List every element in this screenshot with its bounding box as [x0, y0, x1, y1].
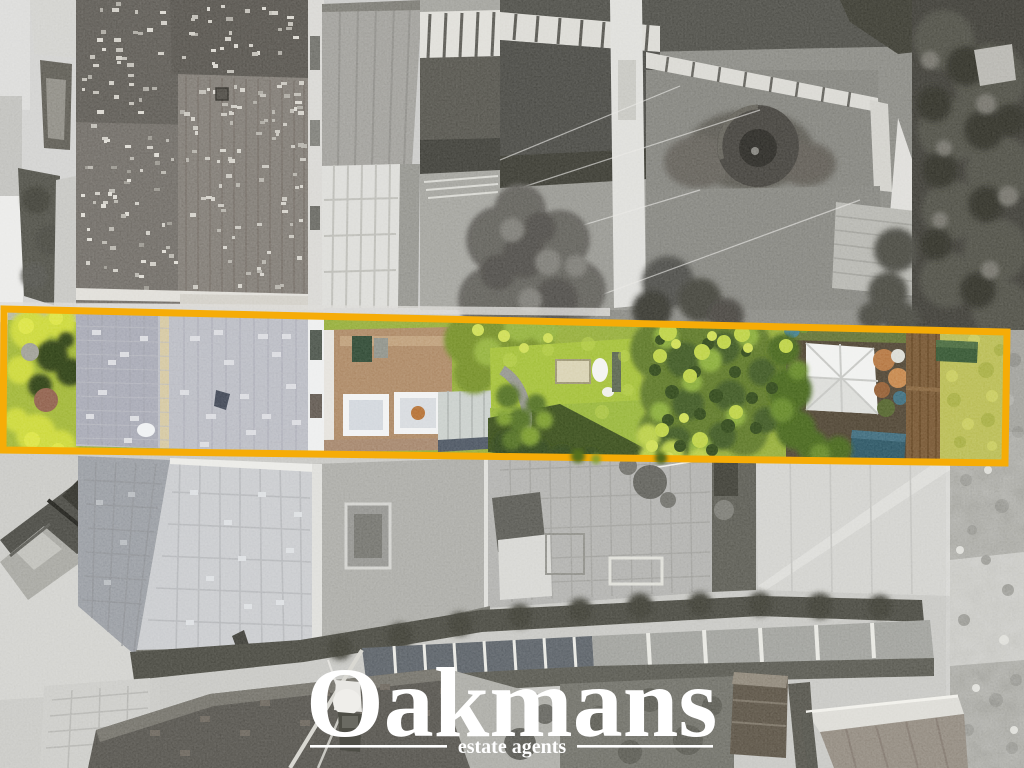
- svg-text:estate agents: estate agents: [458, 736, 567, 758]
